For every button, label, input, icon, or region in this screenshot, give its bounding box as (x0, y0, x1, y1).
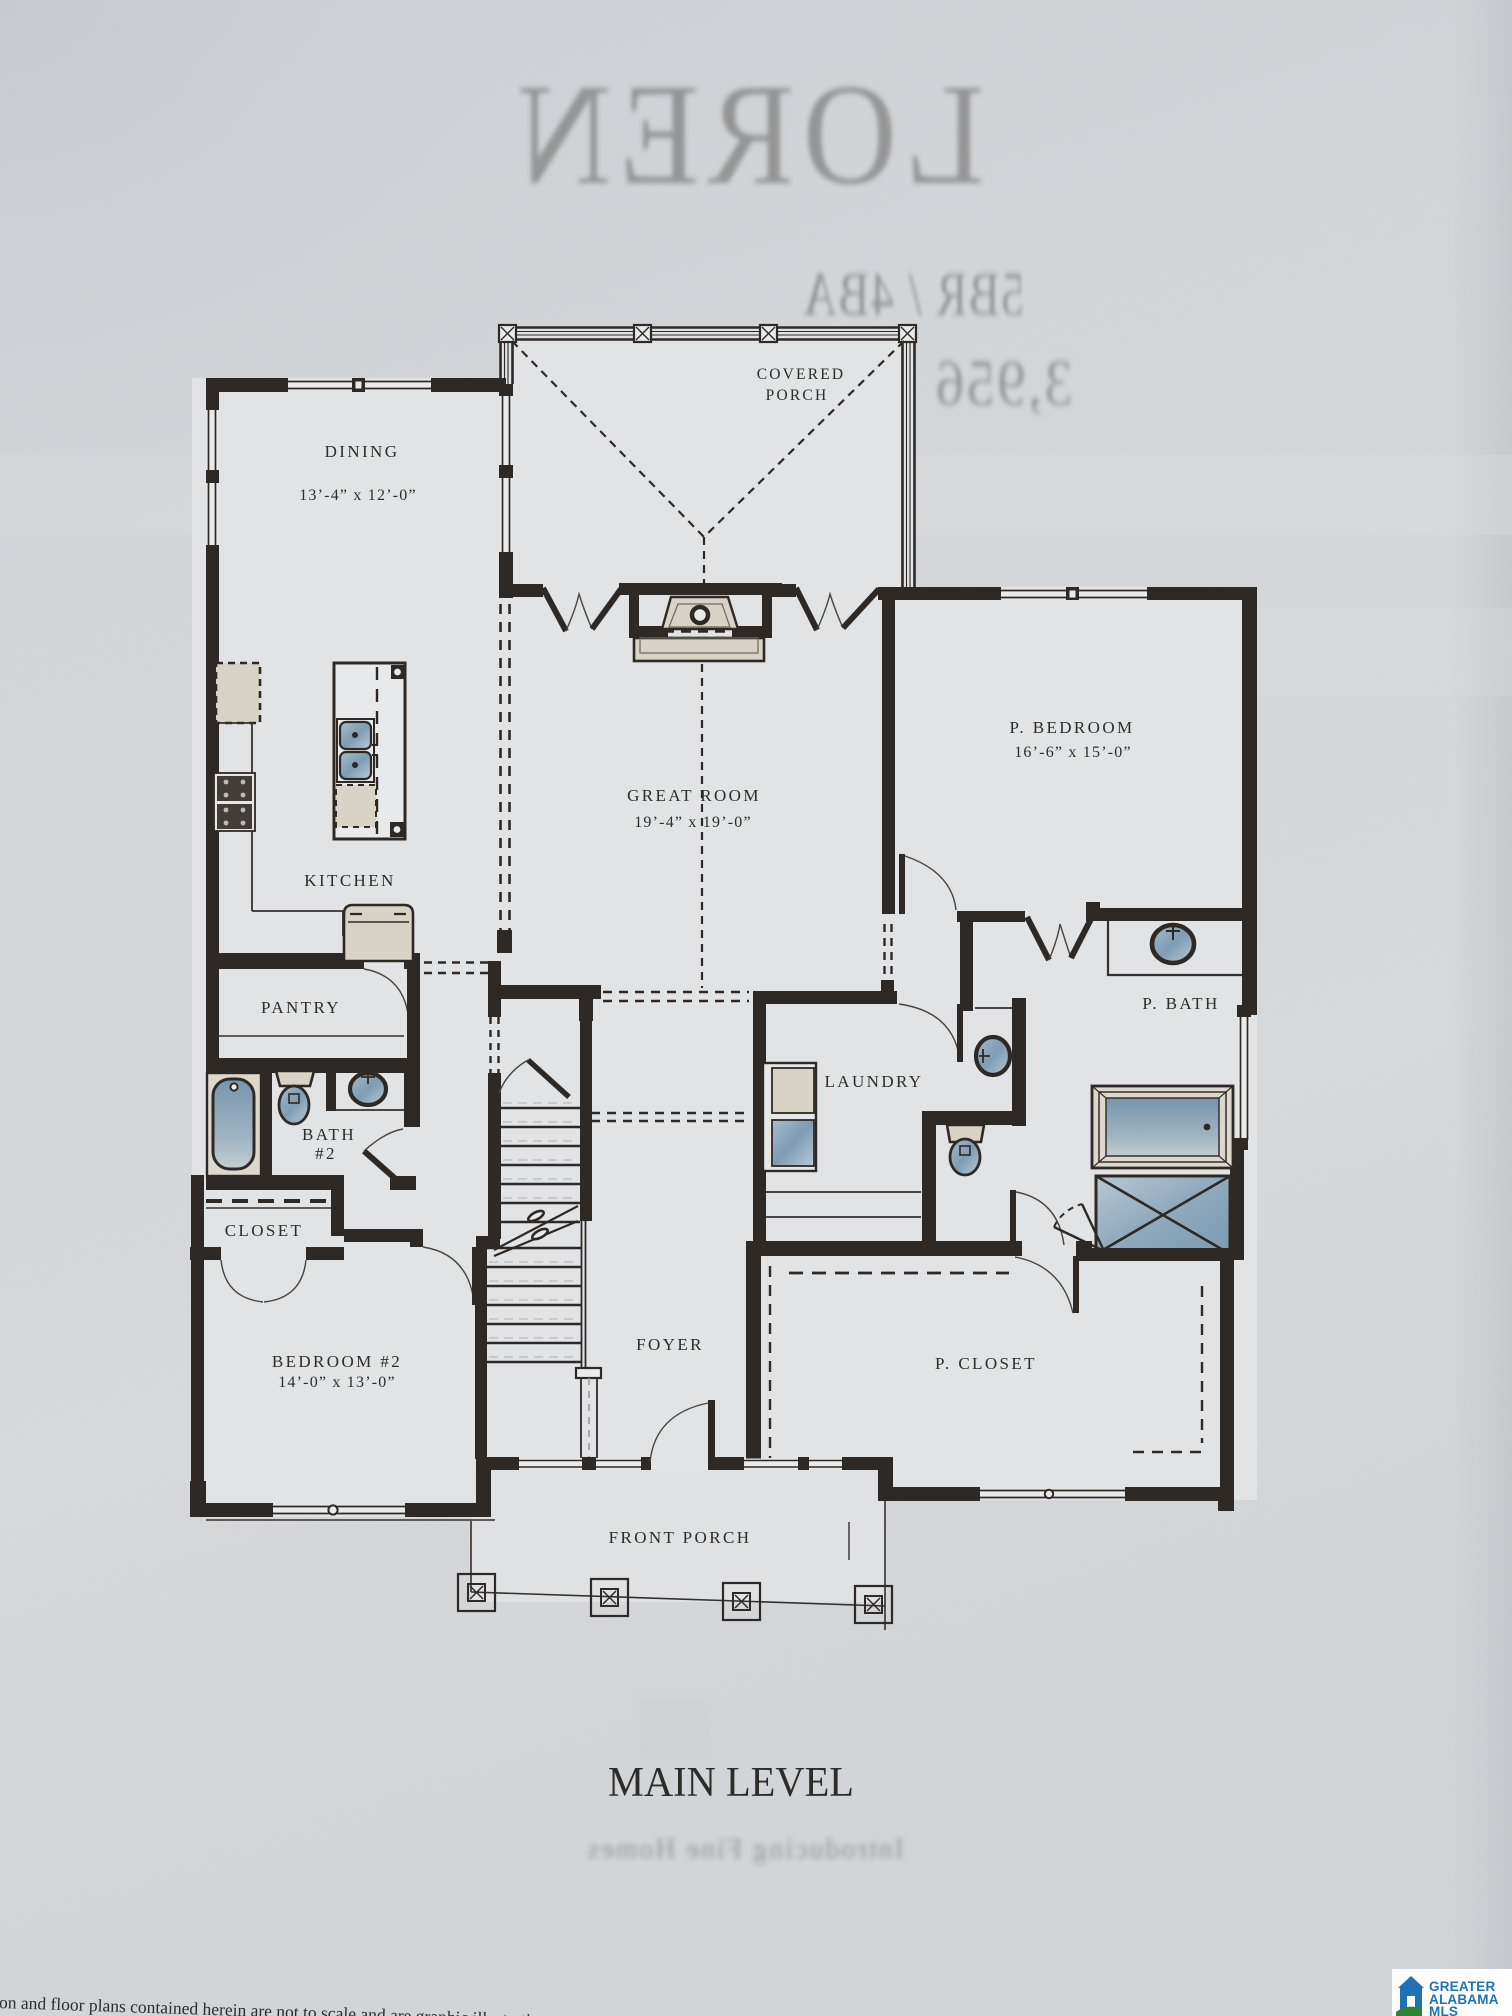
svg-text:#2: #2 (315, 1144, 337, 1163)
svg-text:P. BEDROOM: P. BEDROOM (1009, 718, 1134, 737)
svg-text:P. BATH: P. BATH (1142, 994, 1219, 1013)
svg-text:PORCH: PORCH (766, 387, 829, 404)
svg-text:PANTRY: PANTRY (261, 998, 341, 1017)
svg-text:KITCHEN: KITCHEN (304, 871, 395, 890)
svg-text:13’-4” x 12’-0”: 13’-4” x 12’-0” (299, 487, 417, 504)
svg-text:CLOSET: CLOSET (225, 1221, 304, 1240)
svg-text:LAUNDRY: LAUNDRY (825, 1072, 924, 1091)
svg-text:MLS: MLS (1429, 2004, 1458, 2016)
svg-text:14’-0” x 13’-0”: 14’-0” x 13’-0” (278, 1374, 396, 1391)
svg-text:COVERED: COVERED (757, 366, 846, 383)
svg-text:P. CLOSET: P. CLOSET (935, 1354, 1037, 1373)
svg-text:16’-6” x 15’-0”: 16’-6” x 15’-0” (1014, 744, 1132, 761)
svg-text:MAIN LEVEL: MAIN LEVEL (608, 1760, 854, 1806)
svg-text:19’-4” x 19’-0”: 19’-4” x 19’-0” (634, 814, 752, 831)
svg-text:FRONT PORCH: FRONT PORCH (609, 1528, 752, 1547)
svg-text:BEDROOM #2: BEDROOM #2 (272, 1352, 402, 1371)
svg-text:FOYER: FOYER (636, 1335, 704, 1354)
svg-text:BATH: BATH (302, 1125, 356, 1144)
svg-text:GREAT ROOM: GREAT ROOM (627, 786, 761, 805)
svg-text:DINING: DINING (325, 442, 400, 461)
